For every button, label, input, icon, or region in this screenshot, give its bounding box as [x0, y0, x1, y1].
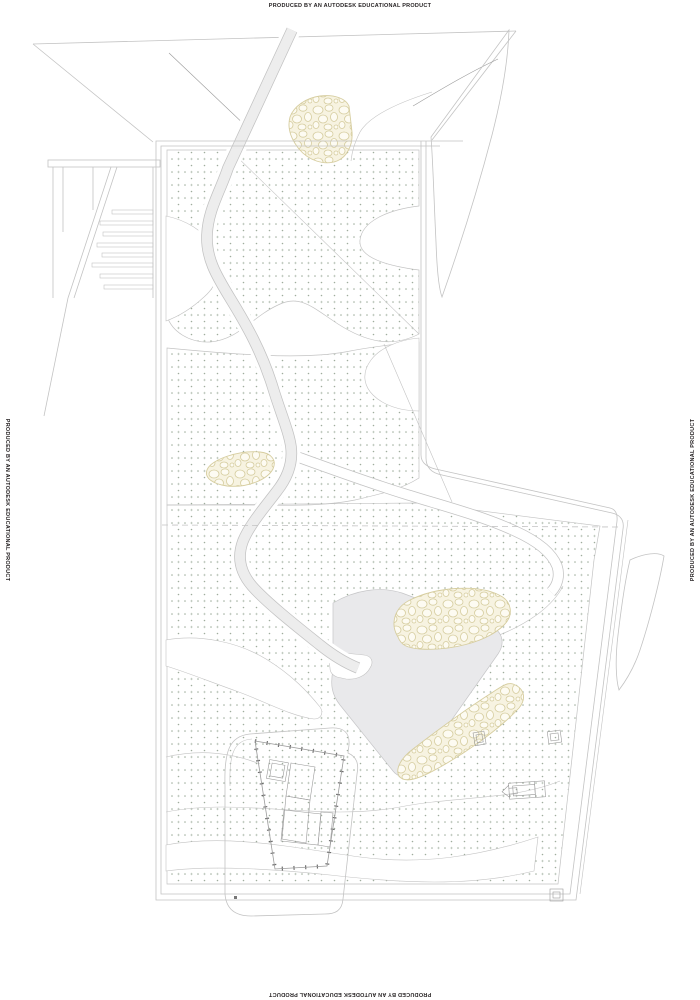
site-plan-drawing	[0, 0, 700, 1000]
stair-terrace	[44, 160, 160, 416]
survey-point	[234, 896, 237, 899]
planting-fields	[167, 150, 600, 884]
east-leaf-shape	[616, 554, 664, 690]
east-sail-wedge	[431, 30, 509, 297]
cad-sheet: PRODUCED BY AN AUTODESK EDUCATIONAL PROD…	[0, 0, 700, 1000]
